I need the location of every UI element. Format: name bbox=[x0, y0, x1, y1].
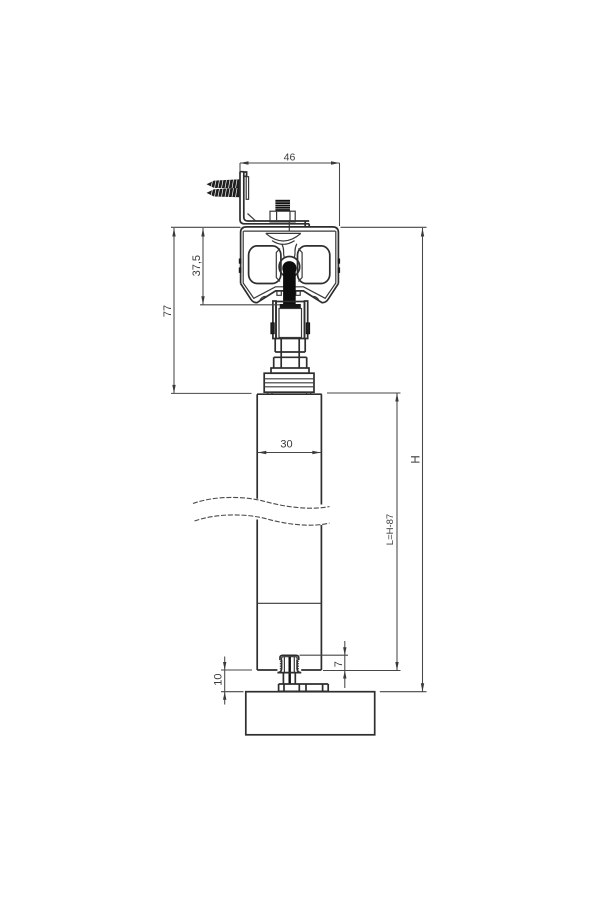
svg-text:H: H bbox=[410, 455, 422, 463]
svg-text:30: 30 bbox=[280, 439, 292, 451]
svg-text:10: 10 bbox=[212, 673, 224, 685]
svg-text:46: 46 bbox=[284, 152, 296, 164]
svg-text:77: 77 bbox=[162, 305, 174, 317]
svg-text:37,5: 37,5 bbox=[191, 255, 203, 276]
svg-text:7: 7 bbox=[333, 661, 345, 667]
svg-text:L=H-87: L=H-87 bbox=[385, 514, 396, 545]
